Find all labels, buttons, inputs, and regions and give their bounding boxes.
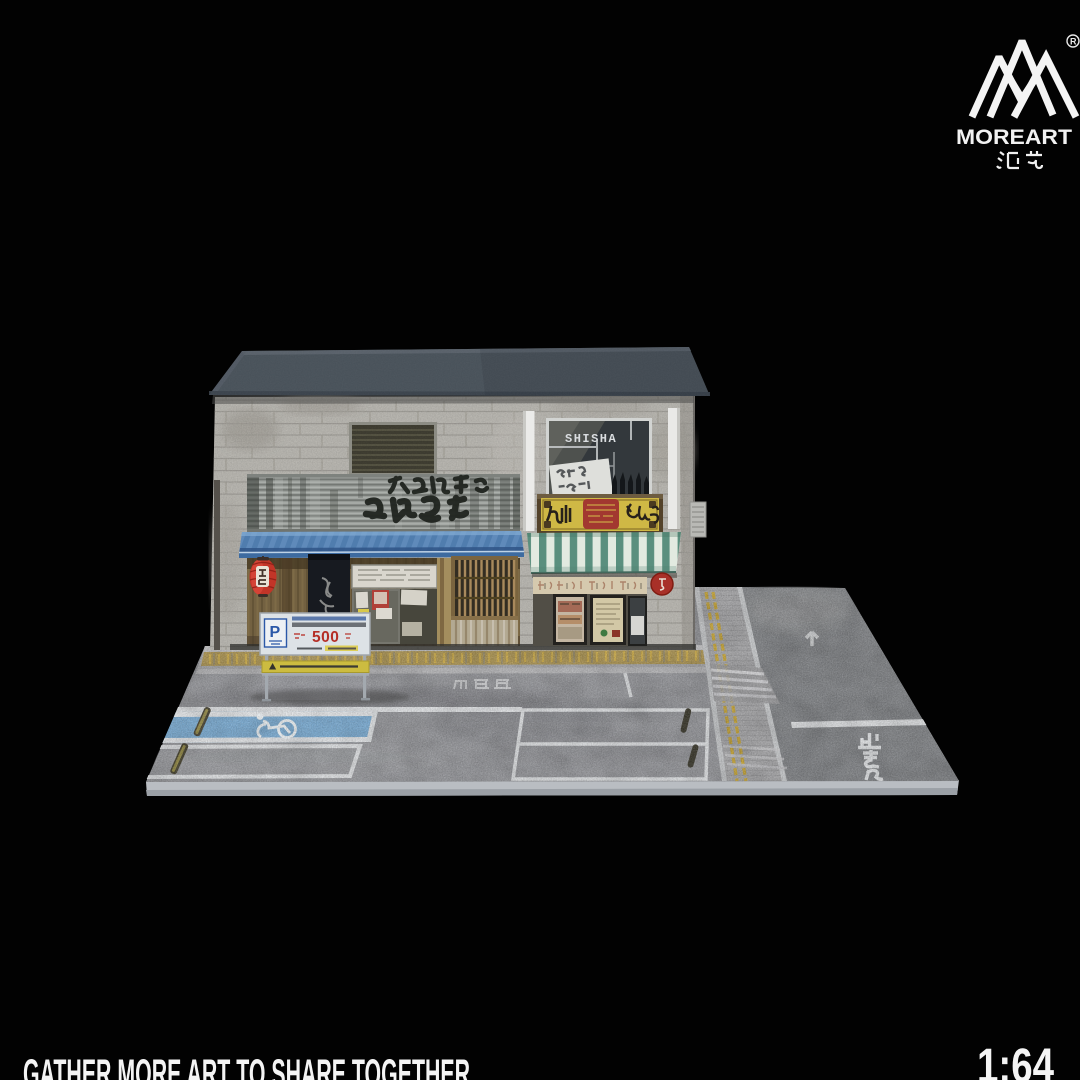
svg-text:500: 500 [312,629,339,646]
svg-text:P: P [270,624,281,641]
svg-text:MOREART: MOREART [956,126,1072,149]
svg-text:GATHER MORE ART TO SHARE TOGET: GATHER MORE ART TO SHARE TOGETHER [23,1052,470,1080]
svg-text:R: R [1070,37,1077,47]
svg-text:1:64: 1:64 [977,1040,1054,1080]
svg-text:SHISHA: SHISHA [565,432,617,446]
